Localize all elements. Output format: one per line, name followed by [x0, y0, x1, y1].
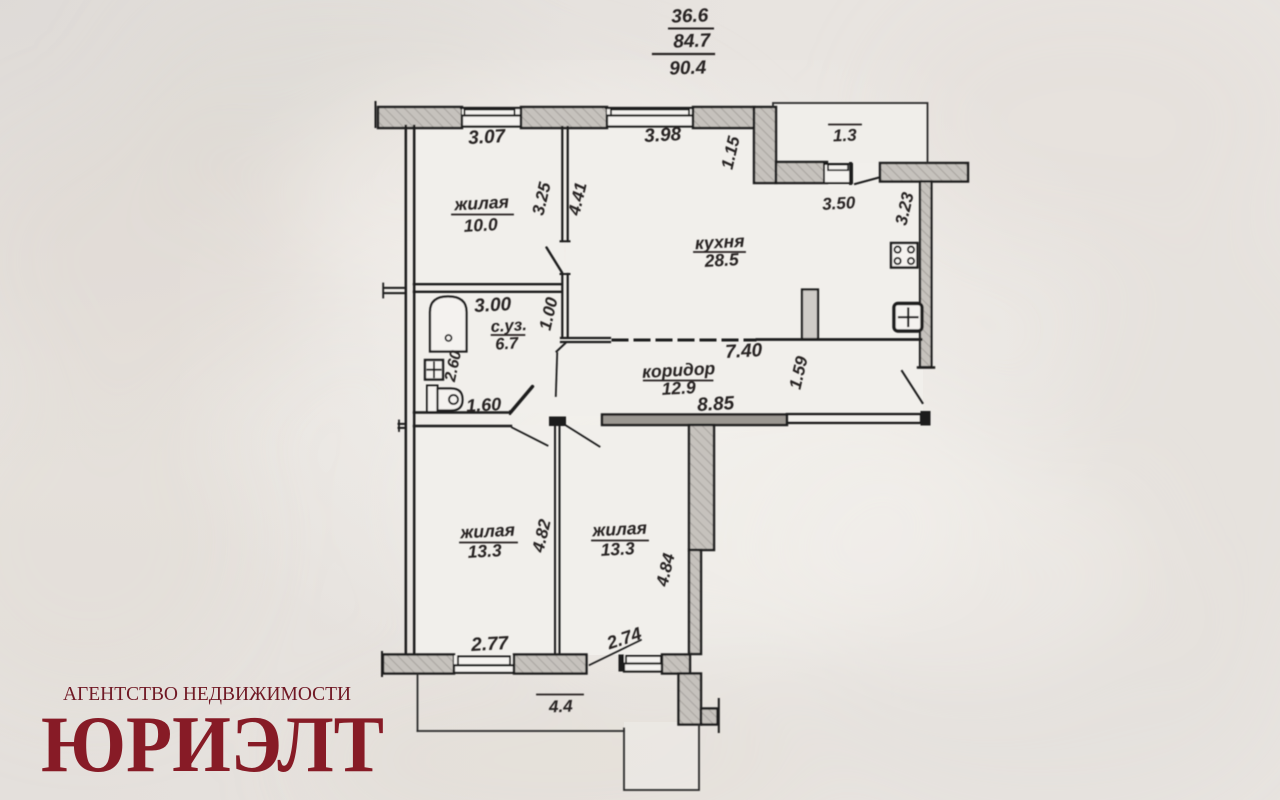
- svg-text:2.77: 2.77: [470, 633, 510, 656]
- svg-text:4.4: 4.4: [548, 697, 574, 717]
- svg-text:36.6: 36.6: [671, 5, 709, 27]
- svg-text:жилая: жилая: [591, 518, 647, 541]
- svg-text:3.00: 3.00: [474, 294, 512, 317]
- svg-text:ЮРИЭЛТ: ЮРИЭЛТ: [41, 699, 384, 789]
- svg-text:1.3: 1.3: [833, 126, 858, 146]
- svg-text:7.40: 7.40: [725, 340, 763, 363]
- svg-text:84.7: 84.7: [673, 30, 712, 52]
- svg-text:с.уз.: с.уз.: [490, 316, 527, 336]
- svg-text:жилая: жилая: [459, 520, 515, 543]
- svg-text:10.0: 10.0: [463, 214, 498, 236]
- svg-text:жилая: жилая: [453, 192, 509, 215]
- svg-text:3.07: 3.07: [468, 126, 507, 149]
- svg-text:6.7: 6.7: [495, 334, 520, 353]
- svg-text:3.98: 3.98: [644, 124, 682, 147]
- svg-text:8.85: 8.85: [697, 393, 735, 416]
- svg-text:1.60: 1.60: [466, 394, 502, 416]
- svg-text:90.4: 90.4: [669, 57, 707, 79]
- svg-text:3.50: 3.50: [822, 193, 857, 214]
